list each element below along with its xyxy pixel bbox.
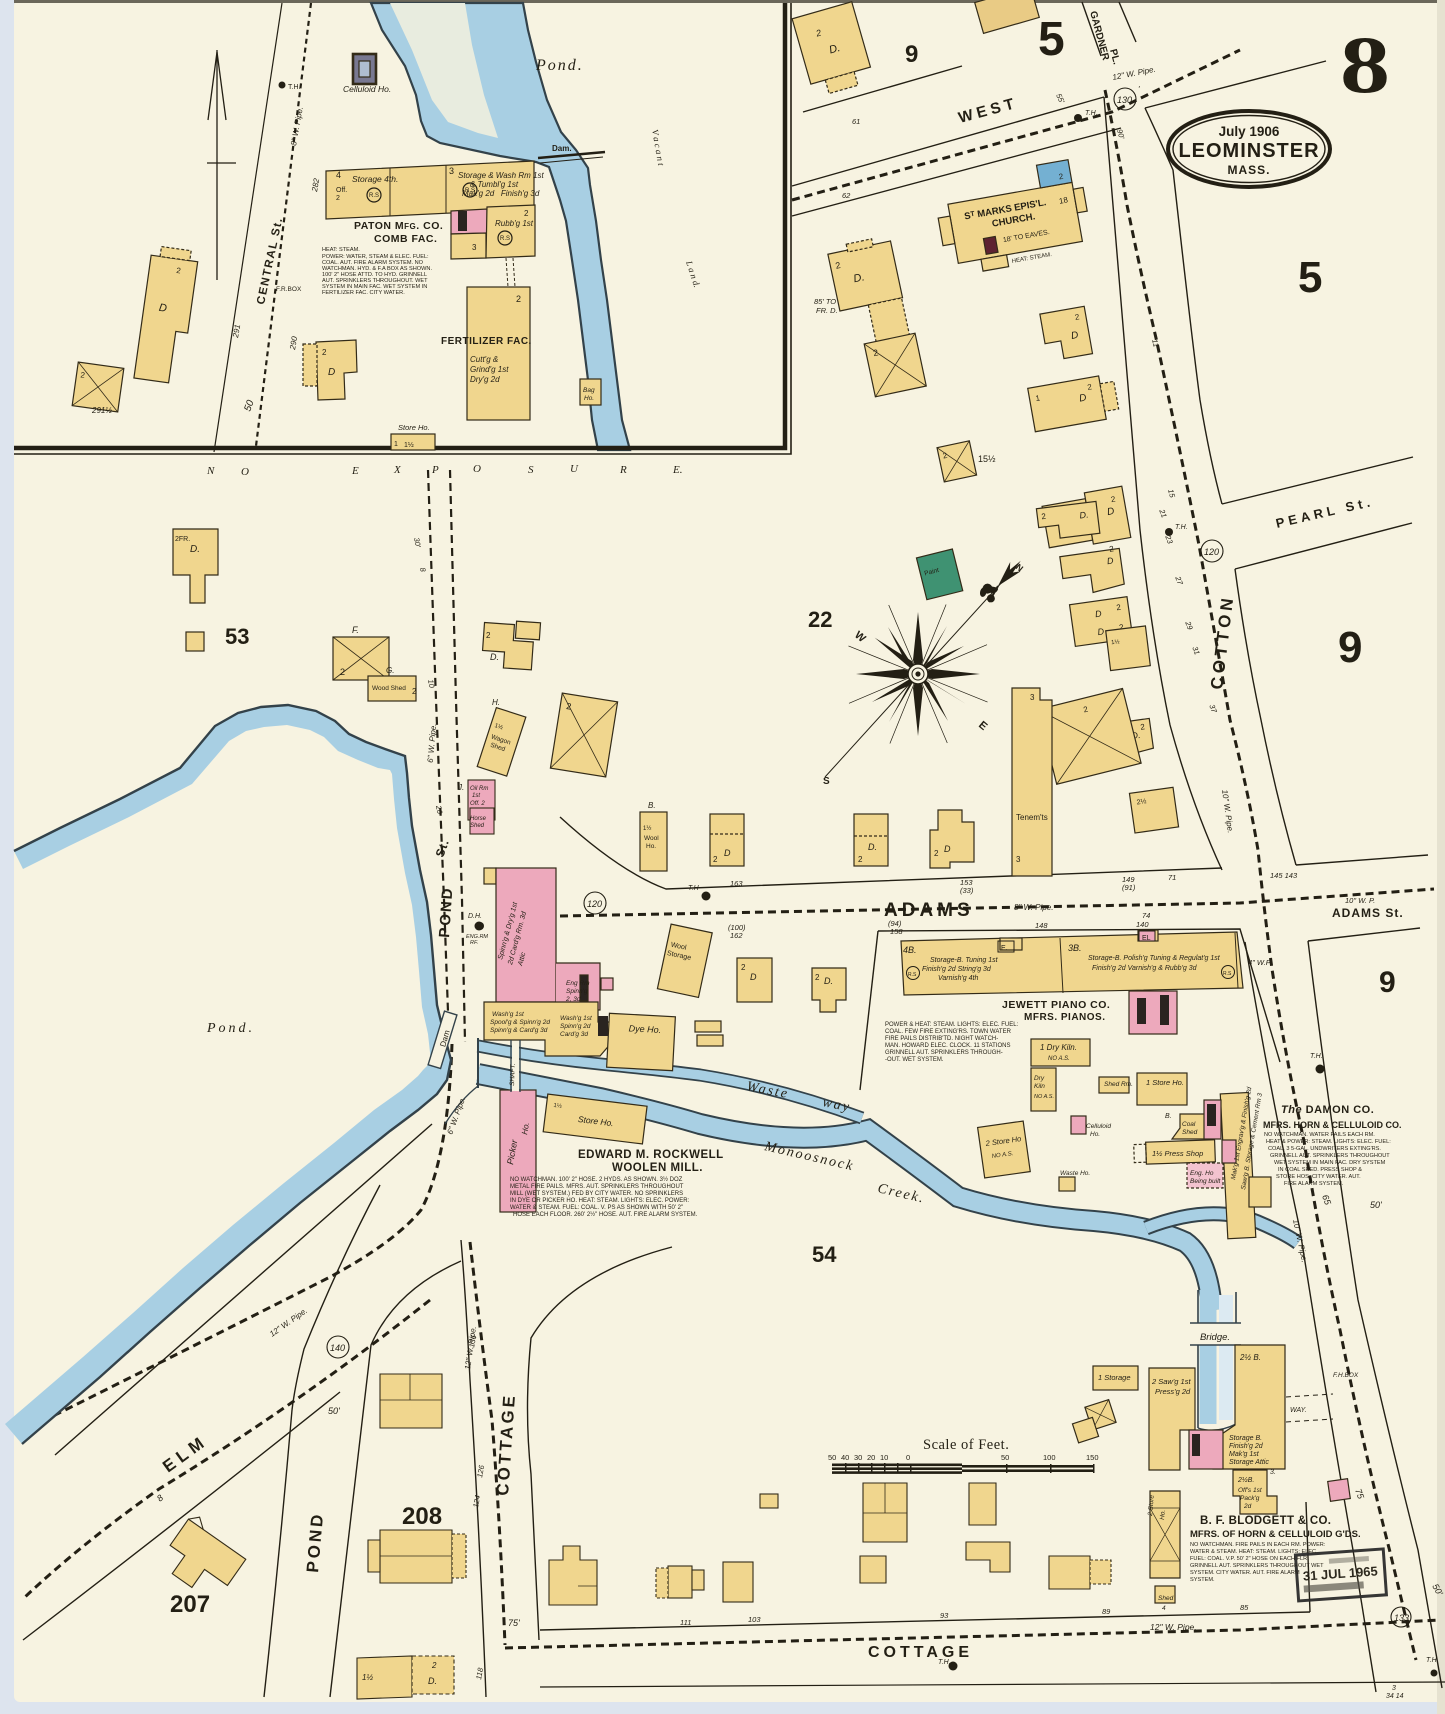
svg-text:74: 74 bbox=[1142, 911, 1150, 920]
svg-text:71: 71 bbox=[1168, 873, 1176, 882]
svg-text:5: 5 bbox=[1038, 13, 1065, 66]
svg-text:Off.: Off. bbox=[336, 187, 347, 194]
svg-text:D.: D. bbox=[428, 1676, 437, 1686]
svg-text:2½ B.: 2½ B. bbox=[1239, 1353, 1261, 1362]
svg-text:MAN. HOWARD ELEC. CLOCK. 11 ST: MAN. HOWARD ELEC. CLOCK. 11 STATIONS bbox=[885, 1043, 1010, 1049]
svg-text:(33): (33) bbox=[960, 886, 974, 895]
svg-text:Eng Rm: Eng Rm bbox=[566, 980, 590, 987]
svg-text:3: 3 bbox=[1392, 1685, 1396, 1692]
svg-text:2: 2 bbox=[524, 209, 529, 218]
svg-text:4: 4 bbox=[1162, 1605, 1166, 1612]
svg-text:62: 62 bbox=[842, 191, 851, 200]
svg-text:IN DYE OR PICKER HO. HEAT: STE: IN DYE OR PICKER HO. HEAT: STEAM. LIGHTS… bbox=[510, 1198, 690, 1204]
svg-text:2½: 2½ bbox=[1136, 797, 1147, 806]
svg-text:Off's 1st: Off's 1st bbox=[1238, 1487, 1263, 1494]
svg-text:103: 103 bbox=[748, 1615, 761, 1624]
svg-text:Finish'g 2d Varnish'g & Rubb': Finish'g 2d Varnish'g & Rubb'g 3d bbox=[1092, 965, 1198, 972]
svg-text:WAY.: WAY. bbox=[1290, 1407, 1307, 1414]
svg-text:WET SYSTEM IN MAIN FAC. DRY SY: WET SYSTEM IN MAIN FAC. DRY SYSTEM bbox=[1274, 1160, 1386, 1166]
svg-text:3: 3 bbox=[472, 243, 477, 252]
svg-text:85: 85 bbox=[1240, 1603, 1249, 1612]
svg-text:20: 20 bbox=[867, 1453, 875, 1462]
svg-text:Storage 4th.: Storage 4th. bbox=[352, 174, 398, 184]
svg-text:Kiln: Kiln bbox=[1034, 1083, 1045, 1090]
svg-text:J.: J. bbox=[457, 783, 464, 792]
svg-text:D.: D. bbox=[824, 976, 833, 986]
svg-text:GRINNELL AUT. SPRINKLERS THROU: GRINNELL AUT. SPRINKLERS THROUGH- bbox=[885, 1050, 1003, 1056]
svg-text:150: 150 bbox=[1086, 1453, 1099, 1462]
svg-text:P: P bbox=[431, 464, 439, 476]
svg-text:4B.: 4B. bbox=[903, 945, 917, 955]
svg-text:Pack'g: Pack'g bbox=[1240, 1495, 1260, 1502]
svg-text:Ho.: Ho. bbox=[646, 843, 656, 850]
svg-text:E: E bbox=[351, 465, 359, 477]
svg-text:STORE HOS. CITY WATER. AUT.: STORE HOS. CITY WATER. AUT. bbox=[1276, 1174, 1361, 1180]
svg-text:291½: 291½ bbox=[91, 406, 112, 415]
svg-text:Card'g 3d: Card'g 3d bbox=[560, 1031, 588, 1038]
svg-text:NO A.S.: NO A.S. bbox=[1034, 1094, 1054, 1100]
svg-text:SYSTEM.: SYSTEM. bbox=[1190, 1577, 1215, 1583]
svg-text:Shed: Shed bbox=[1158, 1595, 1174, 1602]
svg-text:Dye Ho.: Dye Ho. bbox=[628, 1023, 661, 1035]
svg-text:2 Saw'g 1st: 2 Saw'g 1st bbox=[1151, 1377, 1191, 1386]
svg-text:S: S bbox=[823, 776, 830, 787]
svg-text:NO WATCHMAN. WATER PAILS EACH: NO WATCHMAN. WATER PAILS EACH RM. bbox=[1264, 1132, 1375, 1138]
svg-text:JEWETT PIANO CO.: JEWETT PIANO CO. bbox=[1002, 999, 1110, 1011]
svg-text:207: 207 bbox=[170, 1591, 210, 1618]
svg-text:120: 120 bbox=[587, 899, 602, 909]
svg-text:O: O bbox=[241, 466, 249, 478]
svg-text:D: D bbox=[944, 844, 951, 854]
svg-text:MFRS. OF HORN & CELLULOID G'DS: MFRS. OF HORN & CELLULOID G'DS. bbox=[1190, 1529, 1361, 1540]
svg-text:Storage & Wash Rm 1st: Storage & Wash Rm 1st bbox=[458, 171, 544, 180]
svg-text:EDWARD M. ROCKWELL: EDWARD M. ROCKWELL bbox=[578, 1149, 724, 1161]
svg-text:2½B.: 2½B. bbox=[1237, 1476, 1254, 1484]
svg-text:Dam.: Dam. bbox=[552, 144, 572, 153]
svg-text:FIRE ALARM SYSTEM.: FIRE ALARM SYSTEM. bbox=[1284, 1181, 1344, 1187]
svg-text:R.S: R.S bbox=[1223, 971, 1232, 977]
svg-text:9: 9 bbox=[905, 41, 918, 68]
svg-text:FERTILIZER FAC. CITY WATER.: FERTILIZER FAC. CITY WATER. bbox=[322, 290, 405, 296]
svg-text:Oil Rm: Oil Rm bbox=[470, 786, 488, 792]
svg-text:D: D bbox=[328, 367, 335, 378]
svg-text:10: 10 bbox=[880, 1453, 888, 1462]
svg-text:2: 2 bbox=[431, 1661, 437, 1670]
svg-text:2: 2 bbox=[486, 631, 491, 640]
svg-text:GRINNELL AUT. SPRINKLERS THROU: GRINNELL AUT. SPRINKLERS THROUGHOUT WET bbox=[1190, 1563, 1324, 1569]
svg-text:Spinn'g & Card'g 3d: Spinn'g & Card'g 3d bbox=[490, 1027, 548, 1034]
svg-text:-OUT. WET SYSTEM.: -OUT. WET SYSTEM. bbox=[885, 1057, 944, 1063]
svg-text:Spinn'g 2d: Spinn'g 2d bbox=[560, 1023, 591, 1030]
svg-text:Cutt'g &: Cutt'g & bbox=[470, 355, 498, 364]
svg-text:Ho.: Ho. bbox=[1090, 1131, 1100, 1138]
svg-text:Spinn'g: Spinn'g bbox=[566, 988, 588, 995]
svg-text:Varnish'g 4th: Varnish'g 4th bbox=[938, 975, 978, 982]
svg-text:F.R.BOX: F.R.BOX bbox=[276, 286, 302, 293]
svg-text:22: 22 bbox=[808, 607, 832, 632]
svg-text:NO WATCHMAN. 100' 2" HOSE. 2 H: NO WATCHMAN. 100' 2" HOSE. 2 HYDS. AS SH… bbox=[510, 1176, 683, 1183]
svg-text:163: 163 bbox=[730, 879, 743, 888]
svg-text:MILL (WET SYSTEM.) FED BY CITY: MILL (WET SYSTEM.) FED BY CITY WATER. NO… bbox=[510, 1191, 683, 1197]
svg-text:MASS.: MASS. bbox=[1227, 163, 1270, 177]
svg-text:Ho.: Ho. bbox=[584, 395, 594, 402]
svg-text:Grind'g 1st: Grind'g 1st bbox=[470, 365, 509, 374]
svg-text:MFRS. PIANOS.: MFRS. PIANOS. bbox=[1024, 1012, 1106, 1023]
svg-text:FR. D.: FR. D. bbox=[816, 306, 838, 315]
svg-text:148: 148 bbox=[1035, 921, 1048, 930]
svg-text:ADAMS: ADAMS bbox=[884, 900, 974, 921]
svg-text:HEAT & POWER: STEAM. LIGHTS: E: HEAT & POWER: STEAM. LIGHTS: ELEC. FUEL: bbox=[1266, 1139, 1391, 1145]
svg-text:133: 133 bbox=[1394, 1613, 1409, 1623]
svg-text:158: 158 bbox=[890, 927, 903, 936]
svg-text:53: 53 bbox=[225, 624, 249, 649]
svg-text:Scale of Feet.: Scale of Feet. bbox=[923, 1437, 1009, 1453]
svg-text:Off. 2: Off. 2 bbox=[470, 801, 485, 807]
svg-text:The DAMON CO.: The DAMON CO. bbox=[1281, 1104, 1374, 1116]
svg-text:NO WATCHMAN. FIRE PAILS IN EAC: NO WATCHMAN. FIRE PAILS IN EACH RM. POWE… bbox=[1190, 1542, 1326, 1548]
svg-text:GRINNELL AUT. SPRINKLERS THROU: GRINNELL AUT. SPRINKLERS THROUGHOUT bbox=[1270, 1153, 1390, 1159]
svg-text:COAL. 3 5-GAL. UNDWRITERS EXTI: COAL. 3 5-GAL. UNDWRITERS EXTING'RS. bbox=[1268, 1146, 1381, 1152]
svg-text:WOOLEN MILL.: WOOLEN MILL. bbox=[612, 1162, 703, 1174]
svg-text:1½: 1½ bbox=[404, 441, 414, 449]
svg-text:H.: H. bbox=[492, 698, 500, 707]
svg-text:1st: 1st bbox=[472, 793, 480, 799]
svg-text:WATER & STEAM. HEAT: STEAM. LI: WATER & STEAM. HEAT: STEAM. LIGHTS: ELEC… bbox=[1190, 1549, 1318, 1555]
svg-text:93: 93 bbox=[940, 1611, 949, 1620]
svg-text:2: 2 bbox=[713, 855, 718, 864]
svg-text:COMB FAC.: COMB FAC. bbox=[374, 233, 437, 245]
svg-text:COAL. FEW FIRE EXTING'RS. TOWN: COAL. FEW FIRE EXTING'RS. TOWN WATER bbox=[885, 1029, 1012, 1035]
svg-text:& Tumbl'g 1st: & Tumbl'g 1st bbox=[470, 180, 519, 189]
svg-text:15½: 15½ bbox=[978, 454, 996, 464]
svg-text:N: N bbox=[206, 465, 215, 477]
svg-text:9: 9 bbox=[1379, 966, 1396, 999]
svg-text:IN COAL SHED. PRESS SHOP &: IN COAL SHED. PRESS SHOP & bbox=[1278, 1167, 1362, 1173]
svg-text:B.: B. bbox=[1165, 1113, 1172, 1120]
svg-text:July 1906: July 1906 bbox=[1219, 124, 1280, 139]
svg-text:Ho.: Ho. bbox=[1159, 1509, 1167, 1520]
svg-text:LEOMINSTER: LEOMINSTER bbox=[1178, 140, 1319, 162]
svg-text:METAL FIRE PAILS. MFRS. AUT. S: METAL FIRE PAILS. MFRS. AUT. SPRINKLERS … bbox=[510, 1184, 684, 1190]
svg-text:2: 2 bbox=[336, 195, 340, 202]
svg-text:Storage B.: Storage B. bbox=[1229, 1435, 1262, 1442]
svg-text:T.H.: T.H. bbox=[1426, 1657, 1439, 1664]
svg-text:B. F. BLODGETT & CO.: B. F. BLODGETT & CO. bbox=[1200, 1515, 1331, 1527]
svg-text:R: R bbox=[619, 464, 627, 476]
svg-text:Being built: Being built bbox=[1190, 1178, 1222, 1185]
svg-text:G.: G. bbox=[386, 666, 394, 675]
svg-text:Shed: Shed bbox=[1182, 1129, 1198, 1136]
svg-text:85' TO: 85' TO bbox=[814, 297, 836, 306]
svg-text:130: 130 bbox=[1117, 95, 1132, 105]
svg-text:2d: 2d bbox=[1243, 1503, 1252, 1510]
svg-text:Coal: Coal bbox=[1182, 1121, 1196, 1128]
svg-text:MFRS. HORN & CELLULOID CO.: MFRS. HORN & CELLULOID CO. bbox=[1263, 1120, 1402, 1130]
svg-text:D.: D. bbox=[868, 842, 877, 852]
svg-text:Mak'g 1st: Mak'g 1st bbox=[1229, 1451, 1260, 1458]
svg-text:D.H.: D.H. bbox=[468, 913, 482, 920]
svg-text:1 Store Ho.: 1 Store Ho. bbox=[1146, 1078, 1184, 1087]
svg-text:D: D bbox=[750, 972, 757, 982]
svg-text:50': 50' bbox=[328, 1406, 340, 1416]
svg-text:Storage-B. Polish'g Tuning & R: Storage-B. Polish'g Tuning & Regulat'g 1… bbox=[1088, 955, 1221, 962]
svg-text:50: 50 bbox=[828, 1453, 836, 1462]
svg-text:Store Ho.: Store Ho. bbox=[398, 423, 430, 432]
svg-text:COTTAGE: COTTAGE bbox=[868, 1644, 973, 1661]
svg-text:Finish'g 2d String'g 3d: Finish'g 2d String'g 3d bbox=[922, 966, 992, 973]
svg-text:SYSTEM. CITY WATER. AUT. FIRE: SYSTEM. CITY WATER. AUT. FIRE ALARM bbox=[1190, 1570, 1300, 1576]
svg-text:EL: EL bbox=[1142, 935, 1151, 942]
svg-text:Press'g 2d: Press'g 2d bbox=[1155, 1387, 1191, 1396]
svg-text:75': 75' bbox=[508, 1618, 520, 1628]
svg-text:2: 2 bbox=[741, 963, 746, 972]
svg-text:PATON MFG. CO.: PATON MFG. CO. bbox=[354, 220, 443, 232]
svg-text:2: 2 bbox=[858, 855, 863, 864]
svg-text:Pond.: Pond. bbox=[206, 1021, 255, 1036]
svg-text:Celluloid Ho.: Celluloid Ho. bbox=[343, 84, 391, 94]
svg-text:B.: B. bbox=[648, 801, 656, 810]
svg-text:WATER & STEAM. FUEL: COAL. V.: WATER & STEAM. FUEL: COAL. V. PS AS SHOW… bbox=[510, 1205, 683, 1211]
svg-text:50': 50' bbox=[1370, 1200, 1382, 1210]
svg-text:3: 3 bbox=[1016, 855, 1021, 864]
svg-text:54: 54 bbox=[812, 1242, 837, 1267]
svg-text:8: 8 bbox=[1340, 19, 1390, 110]
svg-text:HOSE EACH FLOOR. 260' 2½" HOSE: HOSE EACH FLOOR. 260' 2½" HOSE. AUT. FIR… bbox=[513, 1211, 698, 1218]
svg-text:0: 0 bbox=[906, 1453, 910, 1462]
svg-text:T.H.: T.H. bbox=[938, 1659, 951, 1666]
svg-text:T.H.: T.H. bbox=[1310, 1053, 1323, 1060]
svg-text:U: U bbox=[570, 463, 579, 475]
svg-text:89: 89 bbox=[1102, 1607, 1111, 1616]
svg-text:208: 208 bbox=[402, 1503, 442, 1530]
svg-text:3: 3 bbox=[1030, 693, 1035, 702]
svg-text:Eng. Ho: Eng. Ho bbox=[1190, 1170, 1214, 1177]
svg-text:Dry: Dry bbox=[1034, 1075, 1045, 1082]
svg-text:140: 140 bbox=[330, 1343, 345, 1353]
svg-text:100: 100 bbox=[1043, 1453, 1056, 1462]
svg-text:D.: D. bbox=[490, 652, 499, 662]
svg-text:Storage Attic: Storage Attic bbox=[1229, 1459, 1269, 1466]
svg-text:2: 2 bbox=[815, 973, 820, 982]
svg-text:(91): (91) bbox=[1122, 883, 1136, 892]
svg-text:Waste Ho.: Waste Ho. bbox=[1060, 1170, 1090, 1177]
svg-text:Wash'g 1st: Wash'g 1st bbox=[492, 1011, 525, 1018]
svg-text:ADAMS St.: ADAMS St. bbox=[1332, 906, 1404, 920]
svg-text:D.: D. bbox=[190, 544, 200, 555]
svg-text:Spool'g & Spinn'g 2d: Spool'g & Spinn'g 2d bbox=[490, 1019, 550, 1026]
svg-text:F.H.BOX: F.H.BOX bbox=[1333, 1372, 1359, 1379]
svg-text:1½: 1½ bbox=[553, 1102, 562, 1110]
svg-text:34 14: 34 14 bbox=[1386, 1693, 1404, 1700]
svg-text:Celluloid: Celluloid bbox=[1086, 1123, 1111, 1130]
svg-text:RF.: RF. bbox=[470, 940, 478, 946]
svg-text:Shed Rm.: Shed Rm. bbox=[1104, 1081, 1133, 1088]
svg-text:162: 162 bbox=[730, 931, 743, 940]
svg-text:4: 4 bbox=[336, 170, 341, 180]
svg-text:SHAFT.: SHAFT. bbox=[509, 1063, 517, 1086]
svg-text:61: 61 bbox=[852, 117, 860, 126]
svg-text:50: 50 bbox=[1001, 1453, 1009, 1462]
svg-text:30: 30 bbox=[854, 1453, 862, 1462]
svg-text:111: 111 bbox=[680, 1618, 691, 1627]
svg-text:2: 2 bbox=[412, 687, 417, 696]
svg-text:10" W. P.: 10" W. P. bbox=[1345, 896, 1375, 905]
svg-text:2: 2 bbox=[340, 667, 345, 677]
svg-text:1½: 1½ bbox=[1111, 638, 1120, 646]
svg-text:Bridge.: Bridge. bbox=[1200, 1332, 1230, 1343]
svg-text:2, 3d: 2, 3d bbox=[565, 996, 581, 1003]
svg-text:D: D bbox=[724, 848, 731, 858]
svg-text:Dry'g 2d: Dry'g 2d bbox=[470, 375, 500, 384]
svg-text:1 Storage: 1 Storage bbox=[1098, 1373, 1131, 1382]
svg-text:3.: 3. bbox=[1270, 1469, 1276, 1476]
svg-text:T.H.: T.H. bbox=[288, 84, 301, 91]
svg-text:Storage-B. Tuning 1st: Storage-B. Tuning 1st bbox=[930, 957, 999, 964]
svg-text:120: 120 bbox=[1204, 547, 1219, 557]
svg-text:D.: D. bbox=[1079, 510, 1089, 521]
svg-text:1 Dry Kiln.: 1 Dry Kiln. bbox=[1040, 1043, 1077, 1052]
svg-text:E.: E. bbox=[672, 464, 682, 476]
svg-text:O: O bbox=[473, 463, 481, 475]
svg-text:1½ Press Shop: 1½ Press Shop bbox=[1152, 1149, 1203, 1158]
svg-text:FUEL: COAL. V.P. 50' 2" HOSE O: FUEL: COAL. V.P. 50' 2" HOSE ON EACH FLR… bbox=[1190, 1556, 1309, 1562]
svg-text:Tenem'ts: Tenem'ts bbox=[1016, 813, 1048, 822]
svg-text:F.: F. bbox=[352, 625, 359, 635]
svg-text:POND: POND bbox=[436, 886, 457, 938]
svg-text:Bag: Bag bbox=[583, 387, 595, 394]
svg-text:3: 3 bbox=[449, 166, 454, 176]
svg-text:2: 2 bbox=[322, 348, 327, 357]
svg-text:2FR.: 2FR. bbox=[175, 536, 190, 543]
svg-text:HEAT: STEAM.: HEAT: STEAM. bbox=[322, 247, 360, 253]
svg-text:T.H: T.H bbox=[688, 885, 700, 892]
svg-text:1: 1 bbox=[394, 441, 398, 448]
svg-text:Rubb'g 1st: Rubb'g 1st bbox=[495, 219, 534, 228]
svg-text:5: 5 bbox=[1298, 253, 1322, 302]
svg-text:FIRE PAILS DISTRIB'TD. NIGHT W: FIRE PAILS DISTRIB'TD. NIGHT WATCH- bbox=[885, 1036, 998, 1042]
svg-text:Wool: Wool bbox=[644, 835, 659, 842]
svg-text:Horse: Horse bbox=[470, 816, 487, 822]
svg-text:E.: E. bbox=[1001, 945, 1008, 952]
svg-text:12" W. Pipe.: 12" W. Pipe. bbox=[1150, 1622, 1197, 1632]
svg-text:40: 40 bbox=[841, 1453, 849, 1462]
svg-text:9: 9 bbox=[1338, 623, 1362, 672]
svg-text:4" W.P.: 4" W.P. bbox=[1248, 958, 1272, 967]
svg-text:T.H.: T.H. bbox=[1085, 110, 1098, 117]
svg-text:3B.: 3B. bbox=[1068, 943, 1082, 953]
svg-text:S: S bbox=[528, 464, 534, 476]
svg-text:2: 2 bbox=[934, 849, 939, 858]
svg-text:FERTILIZER FAC.: FERTILIZER FAC. bbox=[441, 336, 532, 347]
svg-text:Wood Shed: Wood Shed bbox=[372, 685, 406, 692]
svg-text:8" W. Pipe.: 8" W. Pipe. bbox=[1014, 903, 1053, 912]
svg-text:Pond.: Pond. bbox=[535, 57, 584, 74]
svg-text:1½: 1½ bbox=[643, 825, 651, 832]
svg-text:Shed: Shed bbox=[470, 823, 485, 829]
svg-text:R.S: R.S bbox=[908, 972, 917, 978]
svg-text:Wash'g 1st: Wash'g 1st bbox=[560, 1015, 593, 1022]
svg-text:T.H.: T.H. bbox=[1175, 524, 1188, 531]
svg-text:2: 2 bbox=[516, 294, 521, 304]
svg-text:X: X bbox=[393, 464, 402, 476]
svg-text:NO A.S.: NO A.S. bbox=[1048, 1056, 1070, 1062]
svg-text:POWER & HEAT: STEAM. LIGHTS: E: POWER & HEAT: STEAM. LIGHTS: ELEC. FUEL: bbox=[885, 1022, 1019, 1028]
svg-text:Finish'g 2d: Finish'g 2d bbox=[1229, 1443, 1264, 1450]
svg-text:140: 140 bbox=[1136, 920, 1149, 929]
svg-text:1½: 1½ bbox=[362, 1673, 373, 1682]
svg-text:145 143: 145 143 bbox=[1270, 871, 1298, 880]
